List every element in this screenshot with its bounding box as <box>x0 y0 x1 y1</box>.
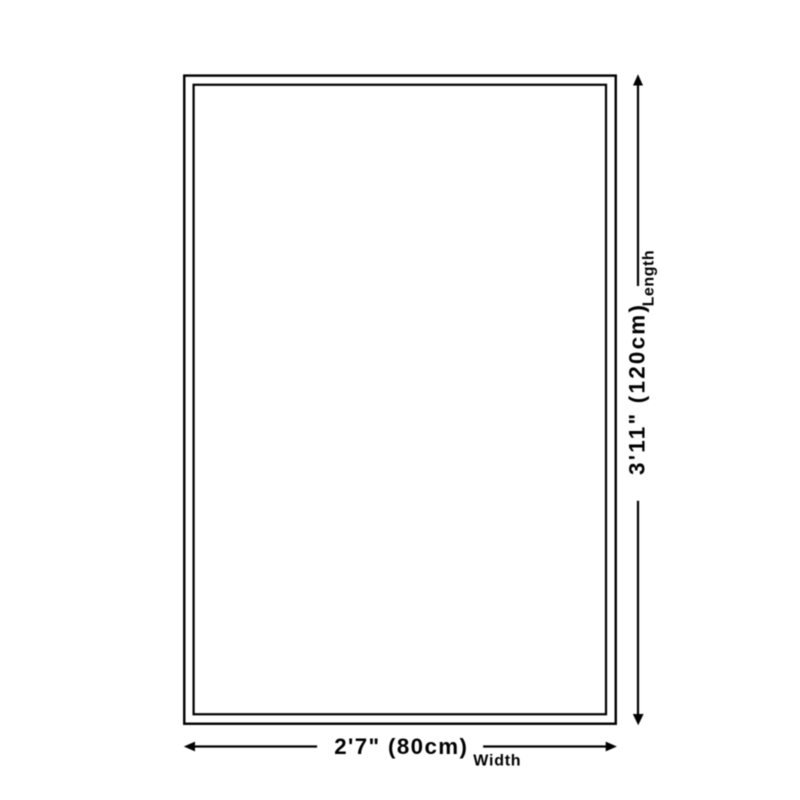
svg-text:2'7" (80cm): 2'7" (80cm) <box>334 734 468 759</box>
svg-text:Width: Width <box>473 753 521 770</box>
svg-text:3'11" (120cm): 3'11" (120cm) <box>624 303 649 475</box>
svg-text:Length: Length <box>641 250 658 307</box>
